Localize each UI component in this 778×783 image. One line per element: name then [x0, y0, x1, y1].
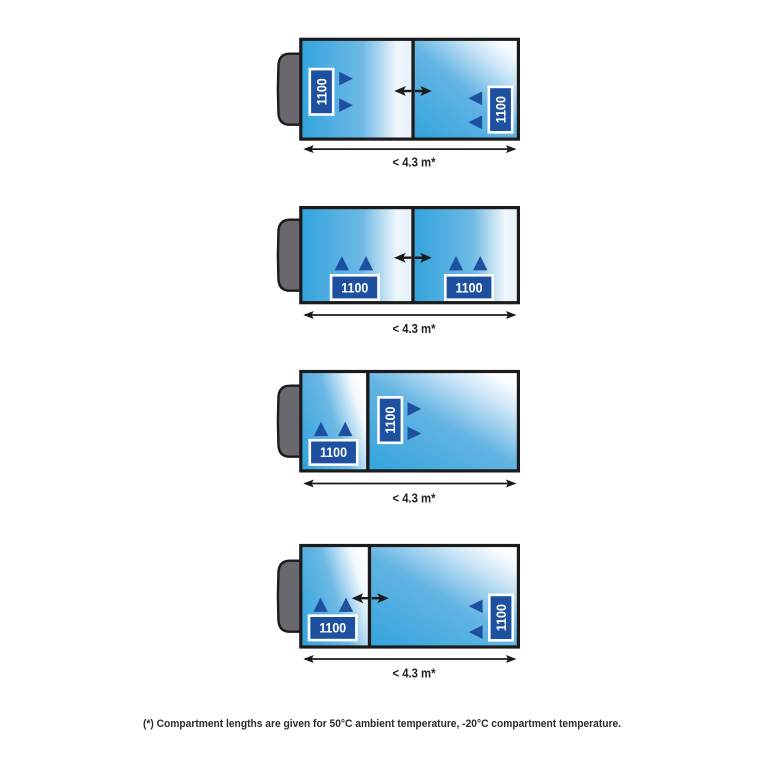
svg-text:1100: 1100	[341, 280, 368, 295]
svg-text:< 4.3 m*: < 4.3 m*	[393, 321, 437, 336]
svg-text:1100: 1100	[314, 78, 330, 105]
svg-text:1100: 1100	[456, 280, 483, 295]
svg-text:1100: 1100	[493, 96, 509, 123]
svg-text:< 4.3 m*: < 4.3 m*	[393, 490, 437, 505]
svg-text:1100: 1100	[493, 604, 509, 631]
svg-text:1100: 1100	[382, 406, 398, 433]
svg-text:1100: 1100	[320, 445, 347, 460]
svg-text:< 4.3 m*: < 4.3 m*	[393, 666, 437, 681]
svg-text:(*) Compartment lengths are gi: (*) Compartment lengths are given for 50…	[143, 718, 621, 730]
svg-text:< 4.3 m*: < 4.3 m*	[393, 154, 437, 169]
svg-text:1100: 1100	[319, 621, 346, 636]
